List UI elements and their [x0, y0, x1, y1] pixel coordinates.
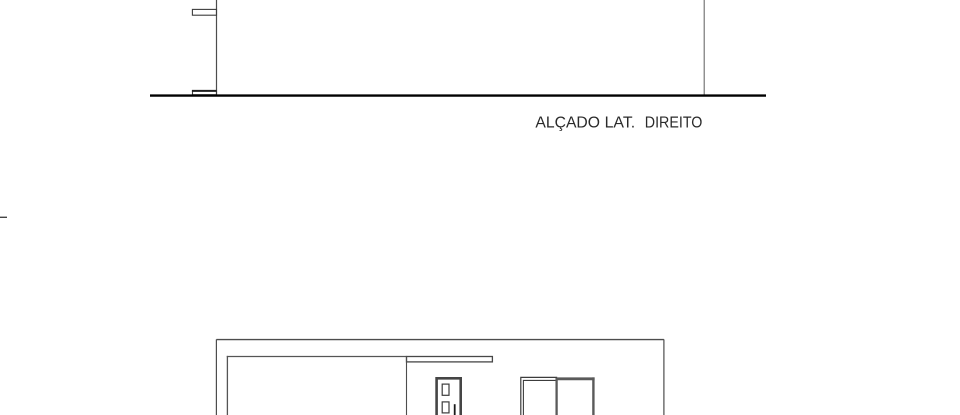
svg-text:DIREITO: DIREITO — [645, 114, 703, 131]
svg-text:LAT.: LAT. — [605, 114, 636, 131]
svg-text:ALÇADO: ALÇADO — [535, 114, 600, 131]
